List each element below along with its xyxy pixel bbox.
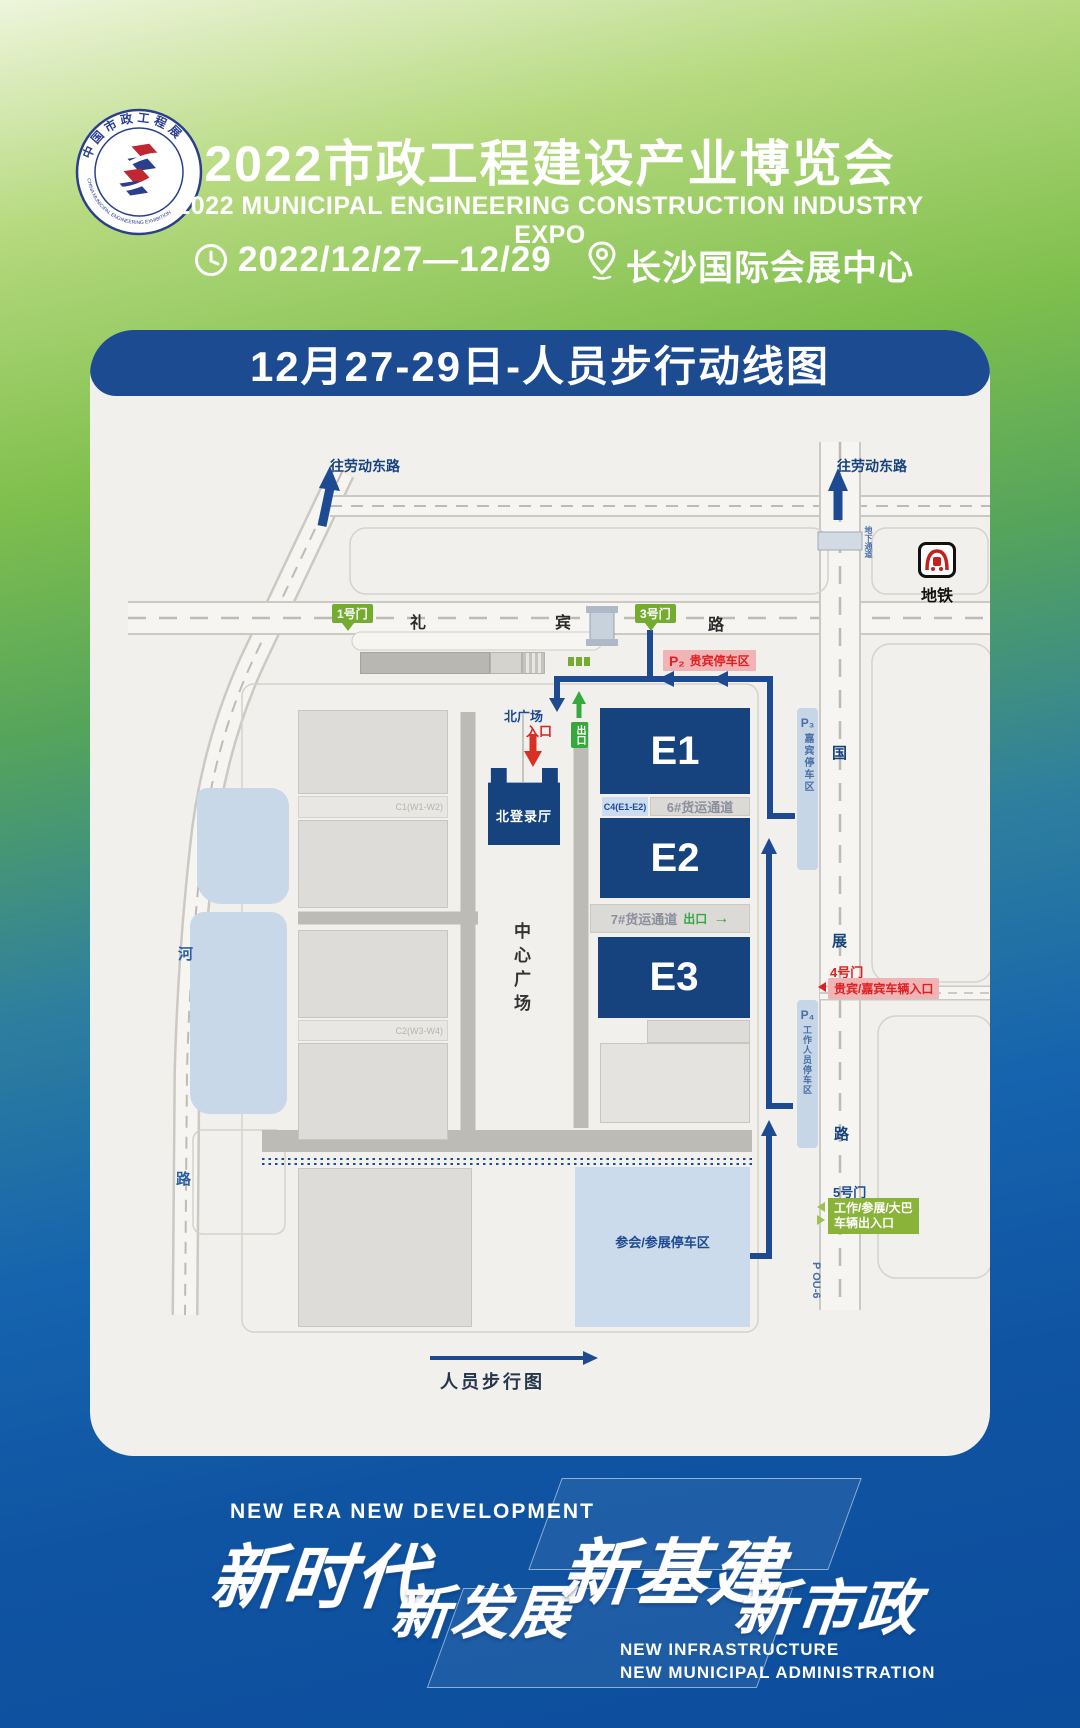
underpass-label: 地下通道 — [863, 526, 874, 558]
entrance-label: 入口 — [526, 721, 552, 740]
gate-3-pointer-icon — [645, 623, 657, 631]
he-road-char-2: 路 — [176, 1168, 191, 1189]
metro-icon — [918, 542, 956, 578]
p3-number: P₃ — [801, 716, 815, 730]
footer-tagline-en: NEW ERA NEW DEVELOPMENT — [230, 1500, 595, 1524]
ticket-booths — [568, 657, 590, 666]
libin-road-char-1: 礼 — [410, 609, 426, 633]
libin-road-char-3: 路 — [708, 611, 724, 635]
west-hall-1 — [298, 710, 448, 794]
gate-5-desc-line1: 工作/参展/大巴 — [834, 1201, 913, 1215]
dropoff-building-mid — [490, 652, 522, 674]
event-venue: 长沙国际会展中心 — [626, 240, 914, 291]
laodong-road-label-left: 往劳动东路 — [295, 456, 435, 476]
footer-tagline2-line1: NEW INFRASTRUCTURE — [620, 1640, 839, 1660]
gate-4-arrow-icon — [818, 982, 826, 992]
south-west-parking — [298, 1168, 472, 1327]
p2-parking-label: P₂ 贵宾停车区 — [663, 650, 756, 671]
map-card-title: 12月27-29日-人员步行动线图 — [90, 330, 990, 396]
hall-e2: E2 — [600, 818, 750, 898]
p4-number: P₄ — [801, 1008, 815, 1022]
exit-east-label: 出口 — [683, 910, 707, 927]
gate-4-desc-label: 贵宾/嘉宾车辆入口 — [828, 978, 939, 999]
center-plaza-label: 中心广场 — [508, 922, 533, 1018]
north-registration-hall-label: 北登录厅 — [496, 806, 552, 825]
p2-number: P₂ — [669, 653, 685, 669]
footer-slogan-4: 新市政 — [730, 1560, 925, 1647]
freight-corridor-7-label: 7#货运通道 — [611, 909, 677, 928]
p2-text: 贵宾停车区 — [690, 652, 750, 669]
west-blue-area-1 — [197, 788, 289, 904]
dropoff-building-west — [360, 652, 490, 674]
west-hall-3 — [298, 930, 448, 1018]
corridor-c4-label: C4(E1-E2) — [602, 797, 648, 816]
location-pin-icon — [586, 240, 618, 280]
gate-1-tag: 1号门 — [332, 604, 373, 623]
exit-east-arrow-icon: → — [713, 910, 729, 928]
corridor-c1-label: C1(W1-W2) — [298, 796, 448, 818]
page-title: 2022市政工程建设产业博览会 — [150, 124, 950, 196]
footer-slogan-2: 新发展 — [388, 1566, 577, 1650]
map-card: 12月27-29日-人员步行动线图 — [90, 330, 990, 1456]
footer-tagline2-line2: NEW MUNICIPAL ADMINISTRATION — [620, 1663, 935, 1683]
hall-e1: E1 — [600, 708, 750, 794]
metro-label: 地铁 — [916, 582, 958, 606]
gate-5-desc-label: 工作/参展/大巴 车辆出入口 — [828, 1198, 919, 1234]
laodong-road-label-right: 往劳动东路 — [802, 456, 942, 476]
legend-label: 人员步行图 — [440, 1368, 545, 1394]
guozhan-road-char-2: 展 — [832, 930, 847, 951]
guozhan-road-char-3: 路 — [834, 1123, 849, 1144]
south-annex-2 — [600, 1043, 750, 1123]
p3-label: 嘉宾停车区 — [800, 733, 815, 793]
freight-corridor-6: 6#货运通道 — [650, 797, 750, 816]
p3-parking-strip: P₃ 嘉宾停车区 — [797, 708, 818, 870]
west-hall-2 — [298, 820, 448, 908]
west-hall-4 — [298, 1043, 448, 1140]
he-road-char-1: 河 — [178, 943, 193, 964]
libin-road-char-2: 宾 — [555, 609, 571, 633]
attendee-parking-label: 参会/参展停车区 — [580, 1232, 745, 1251]
hall-e3: E3 — [598, 937, 750, 1018]
gate-5-arrow-right-icon — [817, 1215, 825, 1225]
south-annex-1 — [647, 1020, 750, 1043]
p4-label: 工作人员停车区 — [801, 1025, 814, 1095]
event-date: 2022/12/27—12/29 — [238, 240, 552, 280]
gate-5-arrow-left-icon — [817, 1202, 825, 1212]
p4-parking-strip: P₄ 工作人员停车区 — [797, 1000, 818, 1148]
freight-corridor-7: 7#货运通道 出口 → — [590, 904, 750, 933]
exit-north-label: 出口 — [571, 722, 588, 748]
clock-icon — [193, 242, 229, 278]
guozhan-road-char-1: 国 — [832, 742, 847, 763]
dropoff-building-east — [522, 652, 545, 674]
corridor-c2-label: C2(W3-W4) — [298, 1020, 448, 1041]
west-blue-area-2 — [190, 912, 287, 1114]
freight-corridor-6-label: 6#货运通道 — [667, 797, 733, 816]
poster-canvas: 中国市政工程展 CHINA MUNICIPAL ENGINEERING EXHI… — [0, 0, 1080, 1728]
gate-3-tag: 3号门 — [635, 604, 676, 623]
pou6-label: P OU-6 — [810, 1262, 822, 1298]
gate-5-desc-line2: 车辆出入口 — [834, 1216, 894, 1230]
gate-1-pointer-icon — [342, 623, 354, 631]
